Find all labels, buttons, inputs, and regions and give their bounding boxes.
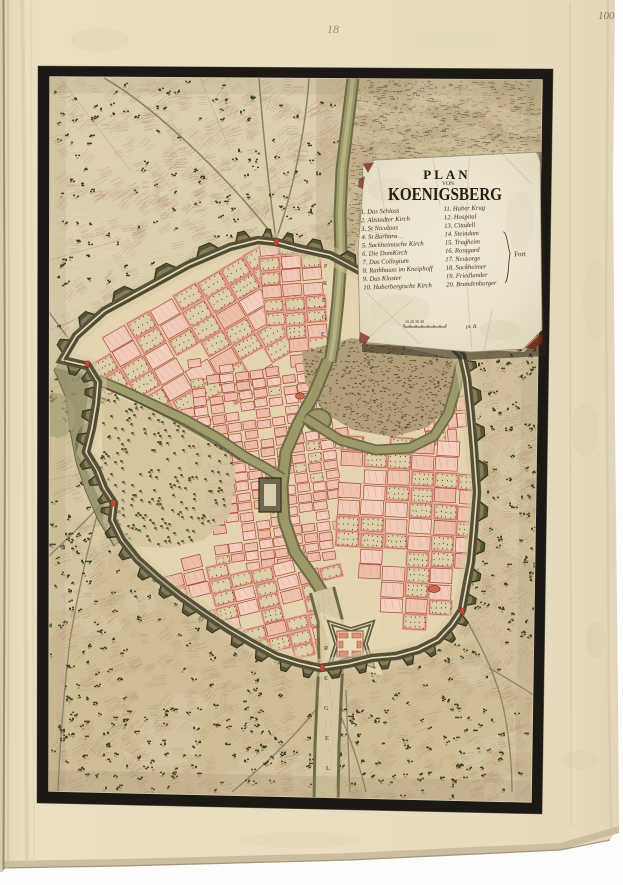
svg-text:E: E <box>325 735 329 742</box>
svg-text:11. Haber Krug: 11. Haber Krug <box>443 205 485 213</box>
svg-text:18: 18 <box>327 22 339 36</box>
svg-text:18. Sackheimer: 18. Sackheimer <box>446 263 487 271</box>
svg-text:13. Citadell: 13. Citadell <box>444 222 476 230</box>
svg-text:16. Rossgard: 16. Rossgard <box>445 247 480 255</box>
svg-text:KOENIGSBERG: KOENIGSBERG <box>388 184 502 204</box>
svg-text:4. St Barbara: 4. St Barbara <box>361 233 398 241</box>
svg-text:L: L <box>320 349 324 355</box>
svg-text:17. Neusorge: 17. Neusorge <box>445 255 480 263</box>
svg-text:15. Tragheim: 15. Tragheim <box>445 238 481 246</box>
svg-text:9. Das Kloster: 9. Das Kloster <box>363 275 402 283</box>
svg-text:100: 100 <box>598 10 615 22</box>
svg-text:12. Hospital: 12. Hospital <box>444 213 477 221</box>
svg-text:E: E <box>321 332 325 338</box>
svg-text:1. Das Schloss: 1. Das Schloss <box>361 208 400 216</box>
svg-text:Fort: Fort <box>514 250 526 258</box>
svg-text:G: G <box>322 315 327 321</box>
svg-text:14. Steindam: 14. Steindam <box>444 230 479 238</box>
svg-text:PLAN: PLAN <box>423 167 470 182</box>
svg-text:E: E <box>322 298 326 304</box>
svg-text:3. St Nicolaus: 3. St Nicolaus <box>360 224 398 232</box>
svg-text:10 20 30 40: 10 20 30 40 <box>405 319 424 324</box>
svg-text:G: G <box>324 705 329 712</box>
svg-text:19. Friedlander: 19. Friedlander <box>446 272 488 280</box>
svg-text:pr. R.: pr. R. <box>465 324 478 330</box>
svg-text:L: L <box>326 765 330 772</box>
svg-text:R: R <box>323 281 327 287</box>
